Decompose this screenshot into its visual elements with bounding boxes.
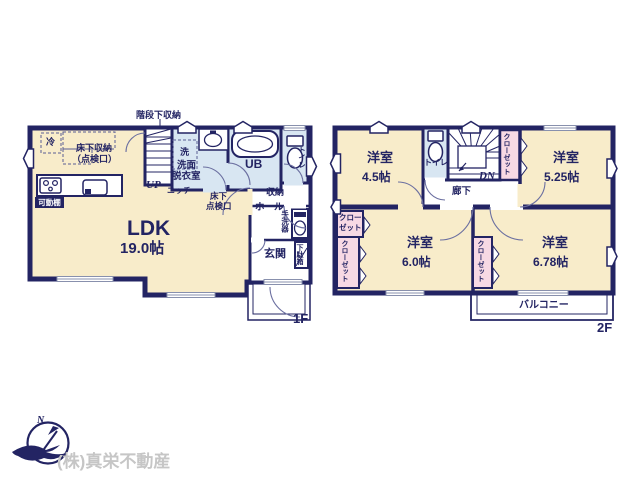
- label-fridge: 冷: [46, 138, 55, 147]
- label-hall: ホール: [255, 203, 284, 213]
- label-room1-size: 4.5帖: [362, 171, 391, 184]
- label-room3-size: 6.0帖: [402, 256, 431, 269]
- label-up: UP: [146, 180, 161, 192]
- label-room2-size: 5.25帖: [544, 171, 579, 184]
- label-niche: ニッチ: [167, 187, 191, 195]
- label-room1-name: 洋室: [367, 151, 393, 165]
- label-washer: 洗: [180, 148, 189, 157]
- label-storage: 収納: [266, 188, 284, 197]
- label-hand-basin: 手洗器: [281, 210, 289, 233]
- hand-basin-icon: [292, 209, 308, 238]
- label-washroom-1: 洗面: [177, 161, 196, 171]
- label-closet-center: クローゼット: [477, 240, 484, 282]
- label-washroom-2: 脱衣室: [172, 172, 201, 182]
- company-name: (株)真栄不動産: [57, 447, 170, 472]
- label-toilet-1f: トイレ: [298, 146, 306, 169]
- label-floor-1f: 1F: [293, 312, 308, 326]
- kitchen-counter: [37, 175, 122, 196]
- label-underfloor-1: 床下: [210, 192, 227, 201]
- label-dn: DN: [479, 171, 495, 183]
- label-ldk-size: 19.0帖: [120, 241, 164, 257]
- label-unit-bath: UB: [245, 158, 262, 171]
- label-compass-north: N: [37, 416, 44, 427]
- floor-plan-canvas: 階段下収納 冷 床下収納 （点検口） 可動棚 UP ニッチ 洗 洗面 脱衣室 U…: [0, 0, 640, 480]
- washbasin-icon: [199, 129, 228, 150]
- label-underfloor-2: 点検口: [206, 202, 232, 211]
- label-shoe-cabinet: 下駄箱: [296, 244, 303, 265]
- label-closet-top: クローゼット: [503, 133, 510, 175]
- label-toilet-2f: トイレ: [424, 159, 448, 167]
- label-floor-2f: 2F: [597, 321, 612, 335]
- corridor-area: [423, 180, 520, 205]
- bathtub-icon: [232, 131, 278, 157]
- toilet-icon-2f: [428, 131, 443, 162]
- label-corridor: 廊下: [452, 187, 471, 197]
- label-closet-left: クローゼット: [341, 240, 348, 282]
- label-underfloor-storage: 床下収納: [76, 144, 112, 153]
- label-stair-storage: 階段下収納: [136, 111, 181, 120]
- label-movable-shelf: 可動棚: [35, 197, 64, 208]
- label-room4-name: 洋室: [542, 236, 568, 250]
- label-room2-name: 洋室: [553, 151, 579, 165]
- label-entrance: 玄関: [264, 249, 286, 261]
- label-room4-size: 6.78帖: [533, 256, 568, 269]
- label-closet-small-2: ゼット: [339, 224, 362, 232]
- label-ldk: LDK: [127, 218, 170, 240]
- label-closet-small-1: クロー: [339, 214, 362, 222]
- label-balcony: バルコニー: [519, 301, 569, 312]
- label-room3-name: 洋室: [407, 236, 433, 250]
- label-underfloor-hatch: （点検口）: [72, 155, 117, 164]
